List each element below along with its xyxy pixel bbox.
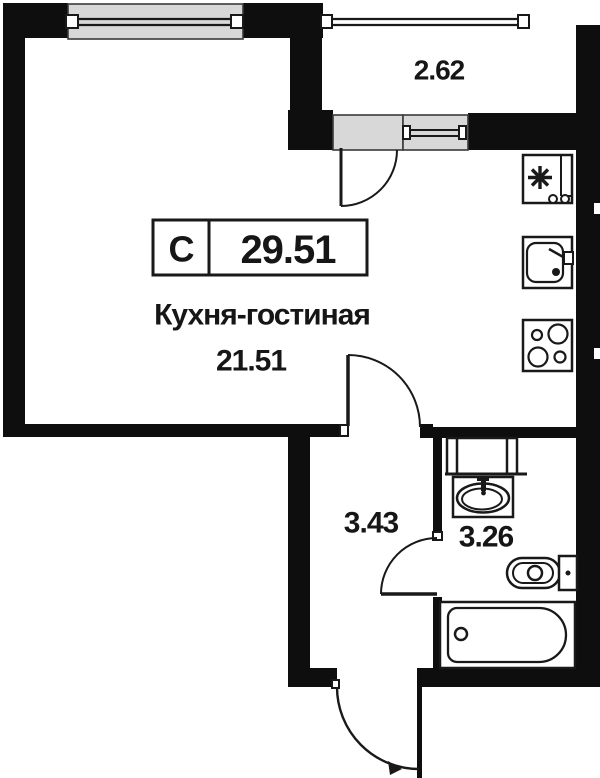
fridge-hinge [561,195,569,203]
wall-hallway-left [288,437,310,668]
wall-bottom-left [288,668,337,687]
unit-type-label: С [169,229,195,270]
hallway-area-label: 3.43 [344,507,399,540]
entrance-swing-arrow-icon [388,761,402,775]
window-main-cap-left [66,15,78,28]
wall-bottom-right [417,668,600,687]
entrance-door-swing [337,687,419,769]
kitchen-living-name: Кухня-гостиная [154,299,370,332]
kitchen-fixtures [523,155,573,371]
window-main-cap-right [231,15,243,28]
balcony-door-panel [333,115,403,150]
balcony-door-swing [341,150,397,206]
bathroom-area-label: 3.26 [459,521,514,554]
wall-top-left [3,3,68,38]
wall-bathroom-left-upper [433,438,442,532]
unit-total-area: 29.51 [240,228,336,272]
kitchen-sink-tap [564,252,573,264]
wall-notch [594,203,600,214]
balcony-window-cap-right [459,126,466,139]
wall-living-hall-divider [3,424,340,437]
entrance-door-jamb [332,680,339,688]
floor-plan: 2.62 С 29.51 Кухня-гостиная 21.51 3.43 3… [0,0,600,778]
living-door-swing [348,355,420,427]
wall-left [3,38,25,424]
wall-balcony-divider [290,38,322,113]
kitchen-sink-drain [552,268,560,276]
kitchen-living-area: 21.51 [216,345,286,378]
floor-plan-drawing: 2.62 С 29.51 Кухня-гостиная 21.51 3.43 3… [0,0,600,778]
washbasin-tap-tip [481,491,486,496]
living-door-jamb [340,425,348,436]
balcony-area-label: 2.62 [414,55,465,86]
wall-top-right [243,3,323,38]
wall-balcony-row-left [288,110,333,150]
wall-bathroom-top [420,427,576,438]
washbasin-tap [481,477,486,491]
window-main-sill [68,4,243,39]
entrance-door-leaf [417,687,422,778]
fridge-hinge [549,195,557,203]
kitchen-sink-basin [527,243,563,282]
balcony-window-cap-left [403,126,410,139]
toilet-button [566,571,571,576]
balcony-glazing-cap-right [518,15,529,28]
wall-balcony-row-right [468,113,578,150]
bathroom-door-swing [381,538,437,594]
balcony-glazing-cap-left [321,15,332,28]
wall-notch [594,348,600,359]
